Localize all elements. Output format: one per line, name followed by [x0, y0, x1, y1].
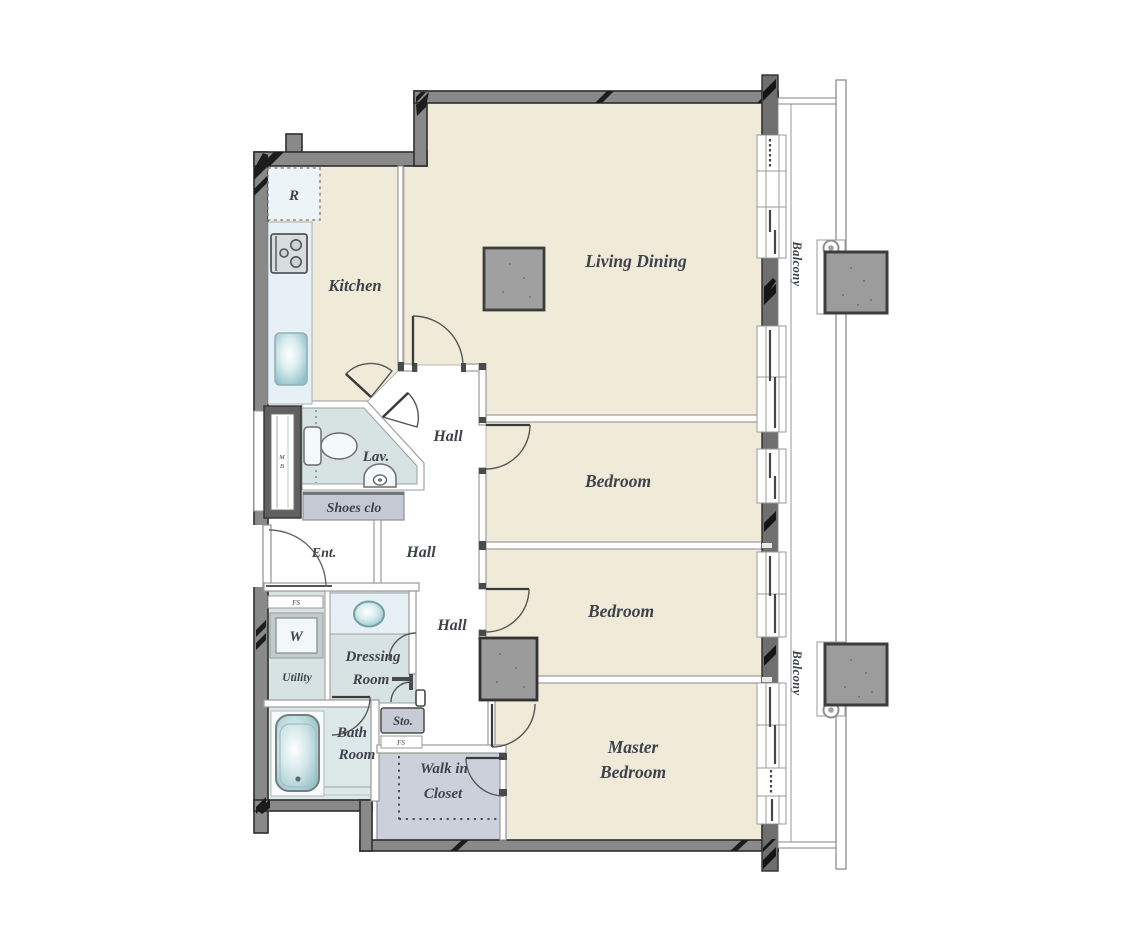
- svg-text:B: B: [280, 463, 284, 470]
- svg-text:Hall: Hall: [436, 617, 467, 634]
- svg-text:R: R: [288, 188, 299, 204]
- svg-text:Dressing: Dressing: [344, 649, 401, 665]
- svg-text:Shoes clo: Shoes clo: [327, 501, 382, 516]
- svg-text:Bedroom: Bedroom: [599, 762, 666, 782]
- svg-text:Living Dining: Living Dining: [584, 251, 687, 271]
- svg-text:FS: FS: [291, 599, 300, 607]
- svg-text:Walk in: Walk in: [420, 761, 468, 777]
- svg-text:Bedroom: Bedroom: [584, 471, 651, 491]
- svg-text:Balcony: Balcony: [790, 649, 804, 695]
- svg-text:Master: Master: [607, 737, 659, 757]
- svg-text:Sto.: Sto.: [393, 714, 413, 728]
- svg-text:Room: Room: [338, 747, 376, 763]
- svg-text:Bedroom: Bedroom: [587, 601, 654, 621]
- svg-text:W: W: [289, 629, 304, 645]
- svg-text:Lav.: Lav.: [362, 449, 390, 465]
- svg-text:Hall: Hall: [432, 428, 463, 445]
- svg-text:Room: Room: [352, 672, 390, 688]
- svg-text:Utility: Utility: [282, 672, 312, 684]
- svg-text:Balcony: Balcony: [790, 240, 804, 286]
- svg-text:Kitchen: Kitchen: [327, 276, 381, 295]
- svg-text:Ent.: Ent.: [311, 546, 337, 561]
- svg-text:FS: FS: [396, 739, 405, 747]
- svg-text:Hall: Hall: [405, 544, 436, 561]
- svg-text:Bath: Bath: [336, 725, 367, 741]
- svg-text:Closet: Closet: [424, 786, 463, 802]
- svg-text:M: M: [278, 454, 285, 461]
